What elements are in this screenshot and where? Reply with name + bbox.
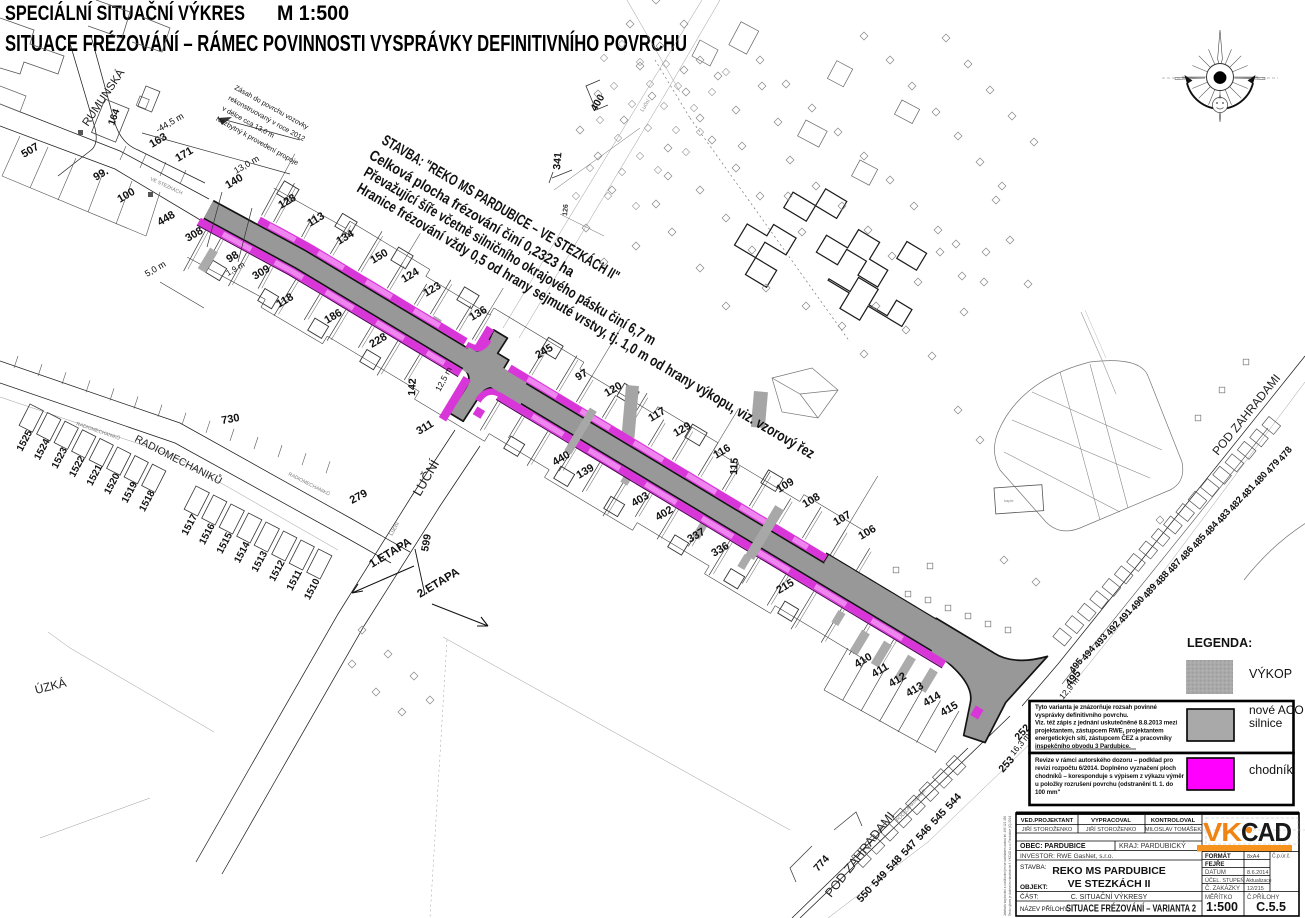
svg-text:MILOSLAV TOMÁŠEK: MILOSLAV TOMÁŠEK: [1145, 826, 1202, 833]
svg-text:nové ACO: nové ACO: [1249, 703, 1304, 717]
svg-text:JIŘÍ STOROŽENKO: JIŘÍ STOROŽENKO: [1022, 825, 1073, 833]
svg-text:Aktualizace: Aktualizace: [1246, 878, 1272, 884]
svg-text:VYPRACOVAL: VYPRACOVAL: [1091, 818, 1131, 824]
svg-text:M 1:500: M 1:500: [277, 2, 349, 25]
svg-text:1:500: 1:500: [1206, 900, 1238, 914]
svg-text:126: 126: [562, 204, 570, 216]
svg-text:Č. ZAKÁZKY: Č. ZAKÁZKY: [1205, 885, 1240, 892]
svg-text:SPECIÁLNÍ SITUAČNÍ VÝKRES: SPECIÁLNÍ SITUAČNÍ VÝKRES: [5, 1, 245, 25]
svg-text:REKO MS PARDUBICE: REKO MS PARDUBICE: [1052, 865, 1166, 877]
svg-text:100 mm": 100 mm": [1035, 789, 1060, 796]
svg-text:JIŘÍ STOROŽENKO: JIŘÍ STOROŽENKO: [1086, 825, 1137, 833]
svg-text:DATUM: DATUM: [1205, 870, 1226, 876]
svg-text:Tento výkres je duševním vlast: Tento výkres je duševním vlastnictvím f.…: [1007, 815, 1012, 916]
svg-text:VE STEZKÁCH II: VE STEZKÁCH II: [1068, 877, 1151, 890]
svg-text:chodník: chodník: [1249, 763, 1294, 777]
svg-text:ÚČEL. STUPEŇ: ÚČEL. STUPEŇ: [1205, 877, 1244, 884]
svg-text:OBEC: PARDUBICE: OBEC: PARDUBICE: [1020, 843, 1086, 850]
svg-text:Č.p.úr.č.: Č.p.úr.č.: [1272, 853, 1291, 860]
svg-text:INVESTOR: RWE GasNet, s.r.o.: INVESTOR: RWE GasNet, s.r.o.: [1020, 853, 1114, 860]
svg-text:KONTROLOVAL: KONTROLOVAL: [1151, 818, 1196, 824]
svg-text:silnice: silnice: [1249, 716, 1283, 730]
svg-text:FORMÁT: FORMÁT: [1205, 853, 1231, 860]
svg-text:NÁZEV PŘÍLOHY:: NÁZEV PŘÍLOHY:: [1020, 905, 1070, 913]
svg-text:341: 341: [551, 152, 564, 171]
svg-text:LEGENDA:: LEGENDA:: [1187, 636, 1252, 650]
svg-text:KRAJ: PARDUBICKÝ: KRAJ: PARDUBICKÝ: [1119, 841, 1186, 850]
svg-text:FEJŘE: FEJŘE: [1205, 860, 1224, 868]
svg-text:115: 115: [728, 457, 741, 475]
svg-text:C.5.5: C.5.5: [1256, 900, 1286, 914]
svg-text:SITUACE FRÉZOVÁNÍ – VARIANTA 2: SITUACE FRÉZOVÁNÍ – VARIANTA 2: [1066, 902, 1196, 915]
svg-text:Jakékoliv kopírování a rozšiřo: Jakékoliv kopírování a rozšiřování jen s…: [1002, 815, 1007, 916]
svg-text:energetických sítí, zástupcem: energetických sítí, zástupcem ČEZ a prac…: [1035, 735, 1172, 742]
svg-text:chodníků – koresponduje s výpi: chodníků – koresponduje s výpisem z výka…: [1035, 773, 1185, 780]
svg-text:VÝKOP: VÝKOP: [1249, 666, 1292, 681]
svg-text:projektantem, zástupcem RWE, p: projektantem, zástupcem RWE, projektante…: [1035, 727, 1164, 734]
svg-text:8xA4: 8xA4: [1247, 854, 1260, 860]
svg-text:VED.PROJEKTANT: VED.PROJEKTANT: [1021, 818, 1074, 824]
svg-text:u položky rozrušení povrchu (o: u položky rozrušení povrchu (odstranění …: [1035, 781, 1173, 788]
svg-text:ČÁST:: ČÁST:: [1020, 892, 1039, 901]
svg-text:C. SITUAČNÍ VÝKRESY: C. SITUAČNÍ VÝKRESY: [1071, 892, 1148, 901]
svg-text:Viz. též zápis z jednání uskut: Viz. též zápis z jednání uskutečněné 8.8…: [1035, 720, 1177, 727]
svg-text:vysprávky definitivního povrch: vysprávky definitivního povrchu.: [1035, 712, 1129, 719]
svg-text:revizi rozpočtu 6/2014. Doplně: revizi rozpočtu 6/2014. Doplněno vyznače…: [1035, 765, 1176, 772]
svg-text:Tyto varianta je znázorňuje ro: Tyto varianta je znázorňuje rozsah povin…: [1035, 704, 1158, 711]
svg-text:12/215: 12/215: [1247, 886, 1264, 892]
svg-text:142: 142: [406, 378, 419, 396]
svg-text:STAVBA:: STAVBA:: [1020, 864, 1047, 871]
svg-text:8.6.2014: 8.6.2014: [1247, 870, 1268, 876]
svg-text:OBJEKT:: OBJEKT:: [1020, 884, 1048, 891]
svg-text:VK: VK: [1203, 817, 1242, 847]
svg-text:kaple: kaple: [1004, 498, 1014, 503]
svg-text:Revize v rámci autorského dozo: Revize v rámci autorského dozoru – podkl…: [1035, 757, 1173, 764]
